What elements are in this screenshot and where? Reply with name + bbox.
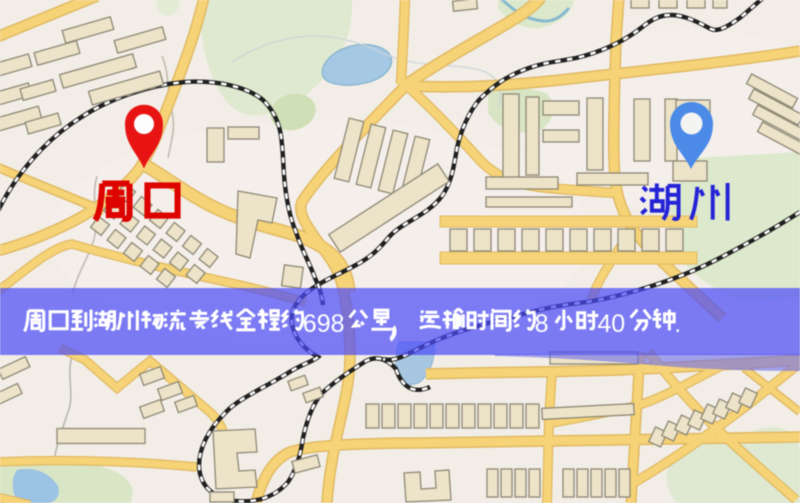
svg-text:.: . <box>674 310 681 338</box>
svg-text:8: 8 <box>535 310 549 338</box>
svg-text:40: 40 <box>597 310 625 338</box>
svg-text:698: 698 <box>303 310 345 338</box>
